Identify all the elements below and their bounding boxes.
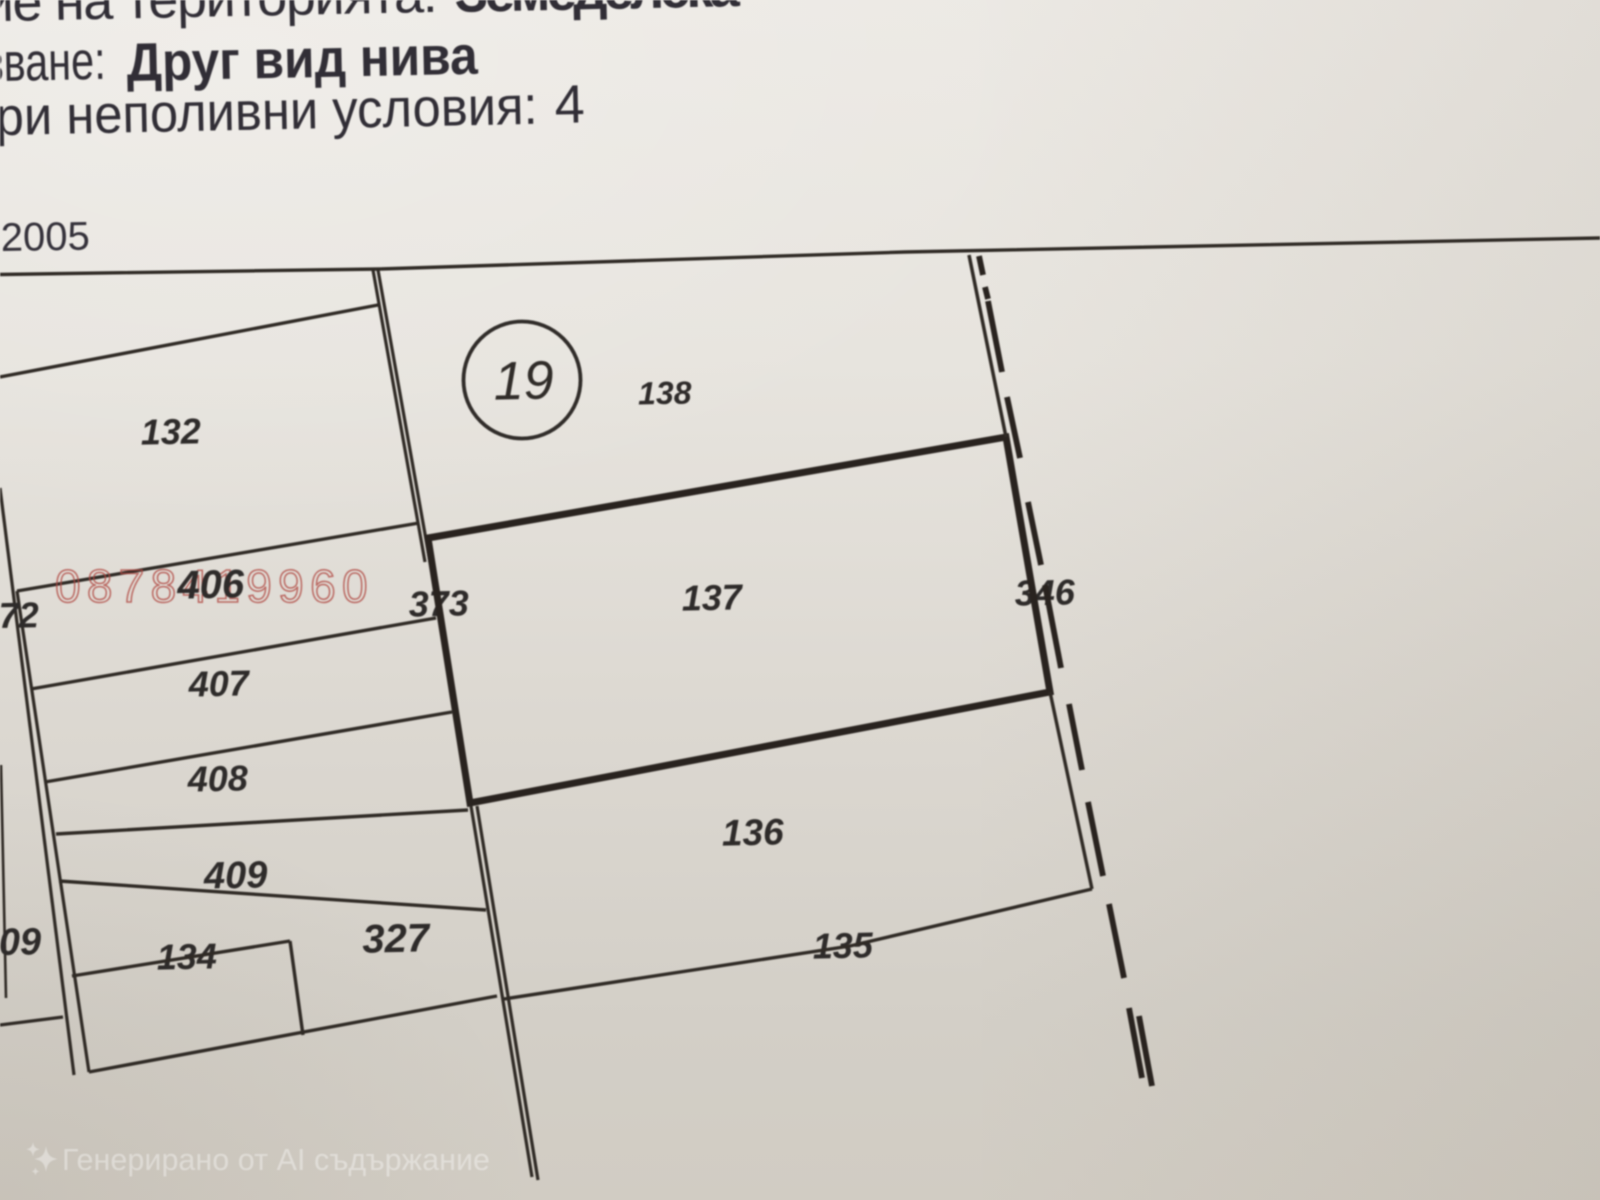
svg-text:132: 132 — [140, 410, 201, 452]
svg-text:Генерирано от AI съдържание: Генерирано от AI съдържание — [62, 1143, 490, 1177]
svg-text:406: 406 — [176, 562, 245, 607]
svg-text:19: 19 — [493, 350, 554, 411]
svg-text:Земеделска: Земеделска — [454, 0, 741, 24]
svg-text:136: 136 — [721, 811, 784, 853]
svg-text:137: 137 — [681, 576, 744, 618]
svg-text:409: 409 — [203, 854, 268, 897]
svg-text:407: 407 — [187, 662, 251, 704]
svg-text:109: 109 — [0, 921, 42, 964]
svg-text:327: 327 — [362, 916, 431, 961]
svg-text:2005: 2005 — [0, 214, 90, 260]
svg-text:408: 408 — [186, 757, 248, 799]
svg-text:ри неполивни условия:: ри неполивни условия: — [0, 76, 538, 147]
svg-text:172: 172 — [0, 594, 39, 636]
svg-text:зване:: зване: — [0, 31, 106, 94]
svg-text:138: 138 — [638, 374, 692, 411]
svg-text:4: 4 — [554, 74, 585, 135]
